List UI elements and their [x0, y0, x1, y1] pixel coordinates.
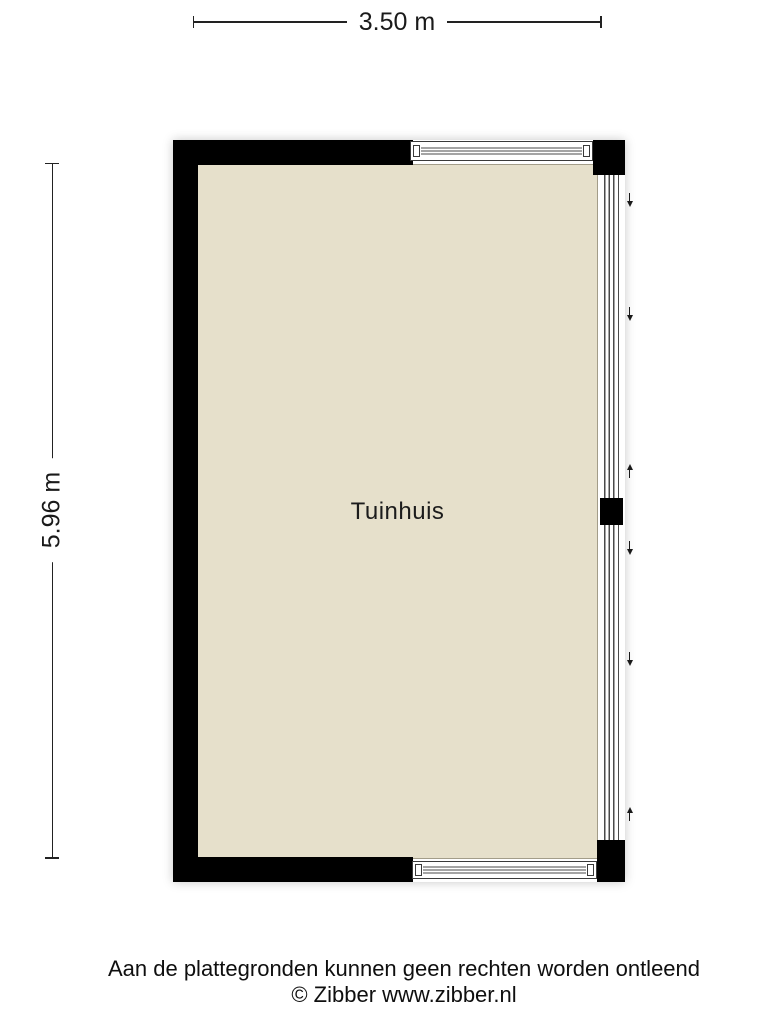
down-arrow-icon: [626, 651, 633, 665]
window-bottom: [412, 861, 597, 879]
top-dimension-label: 3.50 m: [347, 8, 447, 37]
wall-top: [173, 140, 413, 165]
left-dimension-tick-bottom: [45, 857, 59, 859]
wall-left: [173, 140, 198, 882]
wall-corner-top-right: [593, 140, 625, 175]
window-mullion-right: [600, 498, 623, 525]
up-arrow-icon: [626, 808, 633, 822]
window-top: [410, 141, 593, 161]
footer: Aan de plattegronden kunnen geen rechten…: [0, 956, 768, 1008]
wall-bottom: [173, 857, 413, 882]
up-arrow-icon: [626, 465, 633, 479]
window-post-icon: [587, 864, 594, 876]
down-arrow-icon: [626, 192, 633, 206]
wall-corner-bottom-right: [597, 840, 625, 882]
window-glazing-lines: [423, 867, 586, 874]
down-arrow-icon: [626, 540, 633, 554]
floorplan: Tuinhuis: [173, 140, 625, 882]
disclaimer-text: Aan de plattegronden kunnen geen rechten…: [40, 956, 768, 982]
window-post-icon: [583, 145, 590, 157]
floor-area: Tuinhuis: [197, 164, 598, 859]
window-glazing-lines: [421, 148, 582, 155]
window-post-icon: [415, 864, 422, 876]
window-post-icon: [413, 145, 420, 157]
down-arrow-icon: [626, 306, 633, 320]
room-label: Tuinhuis: [351, 498, 445, 526]
copyright-text: © Zibber www.zibber.nl: [40, 982, 768, 1008]
left-dimension-label: 5.96 m: [38, 458, 67, 562]
left-dimension-tick-top: [45, 163, 59, 165]
